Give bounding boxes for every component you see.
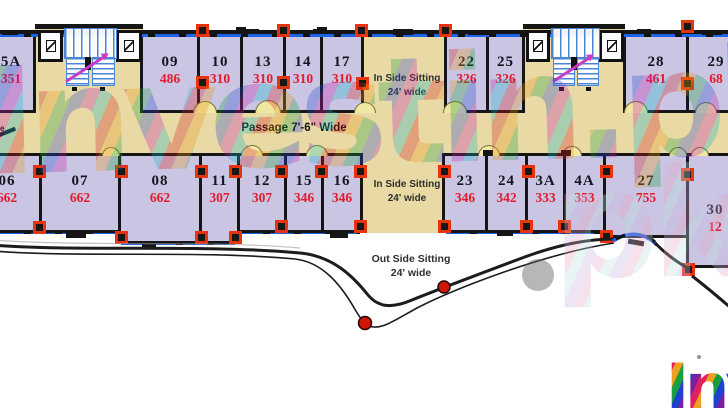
- room-area: 310: [332, 71, 352, 87]
- column-connector: [520, 220, 533, 233]
- dimension-marker: [702, 30, 722, 35]
- lift-symbol-icon: [46, 40, 56, 52]
- column-connector: [196, 76, 209, 89]
- room-number: 24: [498, 173, 515, 190]
- room-area: 307: [209, 190, 229, 206]
- room-number: 3A: [535, 173, 555, 190]
- stair-post: [72, 87, 77, 91]
- lift-symbol-icon: [607, 40, 617, 52]
- stair-post: [100, 87, 105, 91]
- dimension-marker: [468, 30, 490, 35]
- room-07: 07 662: [39, 153, 121, 233]
- lift-right-1: [526, 30, 550, 62]
- column-connector: [439, 24, 452, 37]
- column-connector: [522, 165, 535, 178]
- watermark-dot: [522, 259, 554, 291]
- column-connector: [33, 221, 46, 234]
- column-connector: [33, 165, 46, 178]
- room-number: 15: [296, 173, 313, 190]
- room-number: 09: [162, 54, 179, 71]
- room-number: 22: [458, 54, 475, 71]
- room-number: 25: [497, 54, 514, 71]
- label-line: In Side Sitting: [360, 72, 454, 86]
- dimension-marker: [393, 29, 413, 35]
- inside-sitting-top-label: In Side Sitting 24' wide: [360, 72, 454, 100]
- room-area: 12: [708, 219, 722, 235]
- room-area: 326: [495, 71, 515, 87]
- room-area: 662: [0, 190, 17, 206]
- room-area: 333: [535, 190, 555, 206]
- room-area: 310: [253, 71, 273, 87]
- room-area: 307: [252, 190, 272, 206]
- column-connector: [438, 220, 451, 233]
- room-number: 06: [0, 173, 16, 190]
- dimension-marker: [155, 30, 170, 34]
- column-connector: [229, 231, 242, 244]
- room-area: 353: [574, 190, 594, 206]
- column-connector: [600, 165, 613, 178]
- stair-post: [559, 87, 564, 91]
- column-connector: [229, 165, 242, 178]
- room-14: 14 310: [283, 37, 323, 113]
- column-connector: [115, 231, 128, 244]
- room-27: 27 755: [603, 153, 689, 238]
- column-connector: [354, 165, 367, 178]
- room-area: 346: [332, 190, 352, 206]
- room-number: 14: [295, 54, 312, 71]
- room-area: 461: [646, 71, 666, 87]
- room-number: 08: [152, 173, 169, 190]
- column-connector: [277, 24, 290, 37]
- dimension-marker: [142, 243, 156, 247]
- lift-symbol-icon: [124, 40, 134, 52]
- column-connector: [196, 24, 209, 37]
- dimension-marker: [628, 239, 645, 247]
- room-number: 27: [638, 173, 655, 190]
- room-number: 13: [255, 54, 272, 71]
- lift-symbol-icon: [533, 40, 543, 52]
- lift-left-1: [38, 30, 63, 62]
- inside-sitting-bottom-label: In Side Sitting 24' wide: [359, 178, 455, 206]
- column-connector: [277, 76, 290, 89]
- column-connector: [115, 165, 128, 178]
- room-number: 11: [211, 173, 227, 190]
- outside-sitting-label: Out Side Sitting 24' wide: [360, 252, 462, 280]
- room-number: 12: [254, 173, 271, 190]
- column-connector: [275, 220, 288, 233]
- room-number: 10: [212, 54, 229, 71]
- column-connector: [681, 168, 694, 181]
- floor-plan: 5A 351 09 486 10 310 13 310 14 310 17 31…: [0, 0, 728, 409]
- room-number: 17: [334, 54, 351, 71]
- room-area: 662: [150, 190, 170, 206]
- dimension-marker: [637, 29, 651, 33]
- label-line: Out Side Sitting: [360, 252, 462, 266]
- terrace-dot: [438, 281, 450, 293]
- room-number: 29: [708, 54, 725, 71]
- room-area: 351: [1, 71, 21, 87]
- column-connector: [682, 263, 695, 276]
- column-connector: [195, 165, 208, 178]
- room-area: 310: [210, 71, 230, 87]
- room-area: 326: [456, 71, 476, 87]
- column-connector: [681, 77, 694, 90]
- column-connector: [355, 24, 368, 37]
- column-connector: [558, 220, 571, 233]
- terrace-dot: [359, 317, 372, 330]
- passage-label: Passage 7'-6" Wide: [214, 122, 374, 134]
- room-25: 25 326: [486, 37, 525, 113]
- dimension-marker: [66, 233, 86, 238]
- column-connector: [275, 165, 288, 178]
- column-connector: [681, 20, 694, 33]
- label-line: 24' wide: [360, 86, 454, 100]
- lift-right-2: [599, 30, 624, 62]
- room-number: 5A: [1, 54, 21, 71]
- dimension-marker: [330, 233, 348, 238]
- column-connector: [354, 220, 367, 233]
- dimension-marker: [497, 232, 513, 236]
- lift-left-2: [116, 30, 142, 62]
- room-5A: 5A 351: [0, 37, 36, 113]
- room-number: 4A: [574, 173, 594, 190]
- room-area: 755: [636, 190, 656, 206]
- stair-post: [586, 87, 591, 91]
- watermark-corner-logo: Inv: [666, 350, 728, 409]
- column-connector: [315, 165, 328, 178]
- room-number: 28: [648, 54, 665, 71]
- room-area: 342: [496, 190, 516, 206]
- watermark-corner-dot: [697, 355, 701, 359]
- label-line: 24' wide: [360, 266, 462, 280]
- room-number: 23: [457, 173, 474, 190]
- column-connector: [600, 230, 613, 243]
- dimension-marker: [236, 27, 246, 33]
- room-08: 08 662: [118, 153, 202, 244]
- column-connector: [438, 165, 451, 178]
- room-area: 486: [160, 71, 180, 87]
- room-area: 346: [294, 190, 314, 206]
- dimension-marker: [2, 30, 18, 35]
- room-17: 17 310: [320, 37, 364, 113]
- dimension-marker: [561, 150, 571, 156]
- dimension-marker: [483, 150, 493, 156]
- room-area: 68: [709, 71, 723, 87]
- room-area: 346: [455, 190, 475, 206]
- column-connector: [195, 231, 208, 244]
- room-number: 16: [334, 173, 351, 190]
- clipped-edge-text: e: [0, 124, 10, 133]
- label-line: 24' wide: [359, 192, 455, 206]
- room-number: 07: [72, 173, 89, 190]
- dimension-marker: [317, 27, 327, 33]
- room-area: 662: [70, 190, 90, 206]
- room-09: 09 486: [140, 37, 200, 113]
- room-area: 310: [293, 71, 313, 87]
- room-number: 30: [707, 202, 724, 219]
- label-line: In Side Sitting: [359, 178, 455, 192]
